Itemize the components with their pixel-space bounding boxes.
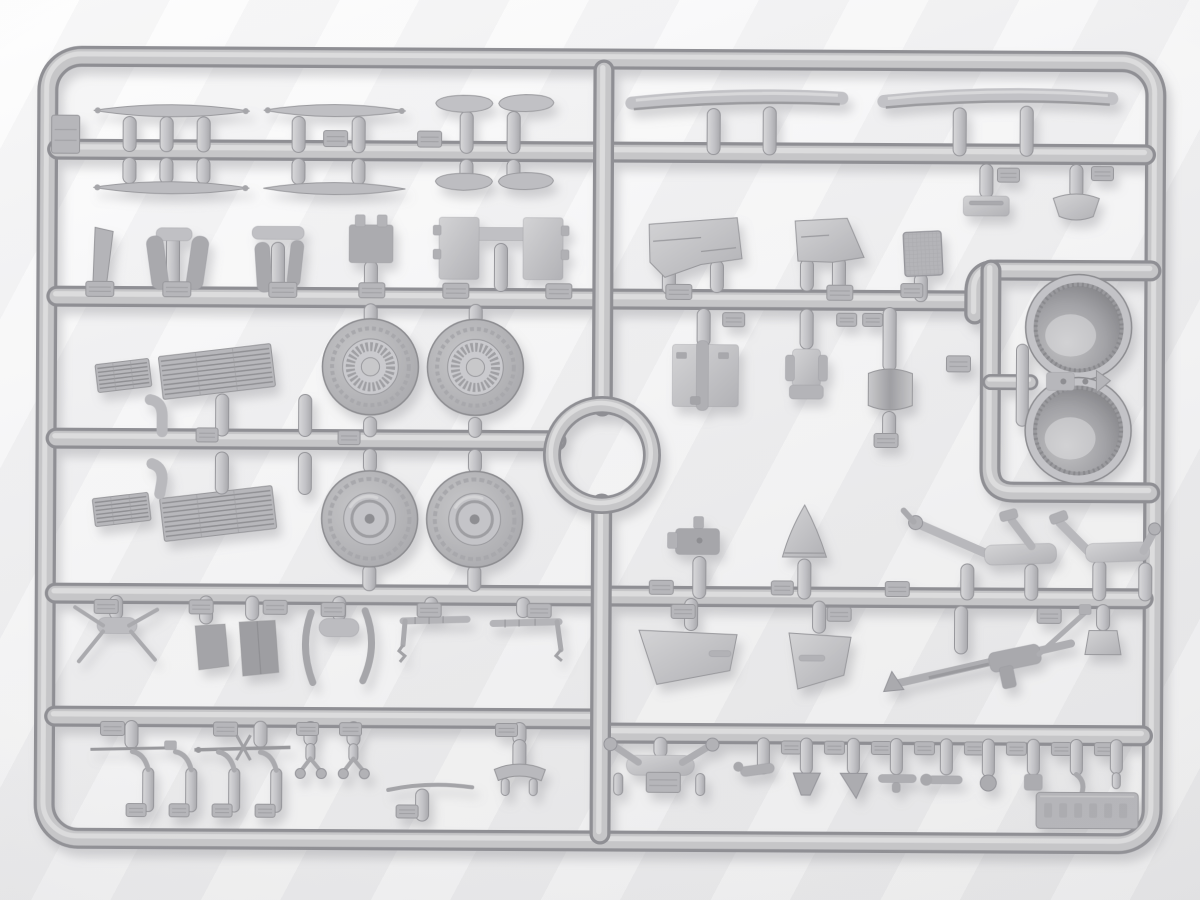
frame-tab-left	[52, 115, 80, 153]
gear-door-right	[789, 601, 851, 689]
landing-gear-strut-left	[885, 507, 1057, 600]
main-wheel-spoked-right	[427, 304, 524, 438]
pilot-seat	[785, 309, 856, 399]
sprue-photo	[0, 0, 1200, 900]
angled-blade-part	[93, 227, 113, 289]
spinner-cone	[771, 505, 826, 599]
main-wheel-flat-right	[426, 449, 523, 592]
radiator-louver-upper-left	[95, 358, 152, 393]
bomb-rack-cluster	[604, 737, 719, 796]
sprue-drawing	[0, 0, 1200, 900]
cockpit-floor-panel	[672, 308, 745, 410]
small-strut-block	[963, 164, 1019, 216]
embossed-text-tab	[1036, 792, 1138, 829]
nose-panel-right	[795, 218, 864, 291]
wide-t-panel-part	[433, 217, 569, 292]
engine-cowling-bottom	[1025, 377, 1132, 484]
standing-blade-part	[388, 784, 472, 821]
engine-cowling-top	[1025, 274, 1132, 381]
small-parts-row	[733, 738, 1122, 800]
elbow-pipe-upper	[150, 400, 162, 432]
sprue-frame-group	[43, 54, 1163, 844]
elbow-pipe-lower	[152, 464, 162, 494]
standing-hook-parts	[126, 752, 282, 818]
nose-panel-left	[649, 217, 742, 294]
small-dome-part	[1053, 164, 1113, 220]
main-wheel-spoked-left	[322, 304, 419, 438]
radiator-louver-lower-right	[159, 485, 277, 542]
curved-cowl-panel	[862, 307, 913, 447]
radiator-louver-lower-left	[92, 492, 151, 527]
gear-door-left	[639, 598, 737, 685]
main-wheel-flat-left	[321, 449, 418, 592]
radiator-louver-upper-right	[158, 343, 276, 400]
u-bracket-part	[349, 215, 393, 291]
